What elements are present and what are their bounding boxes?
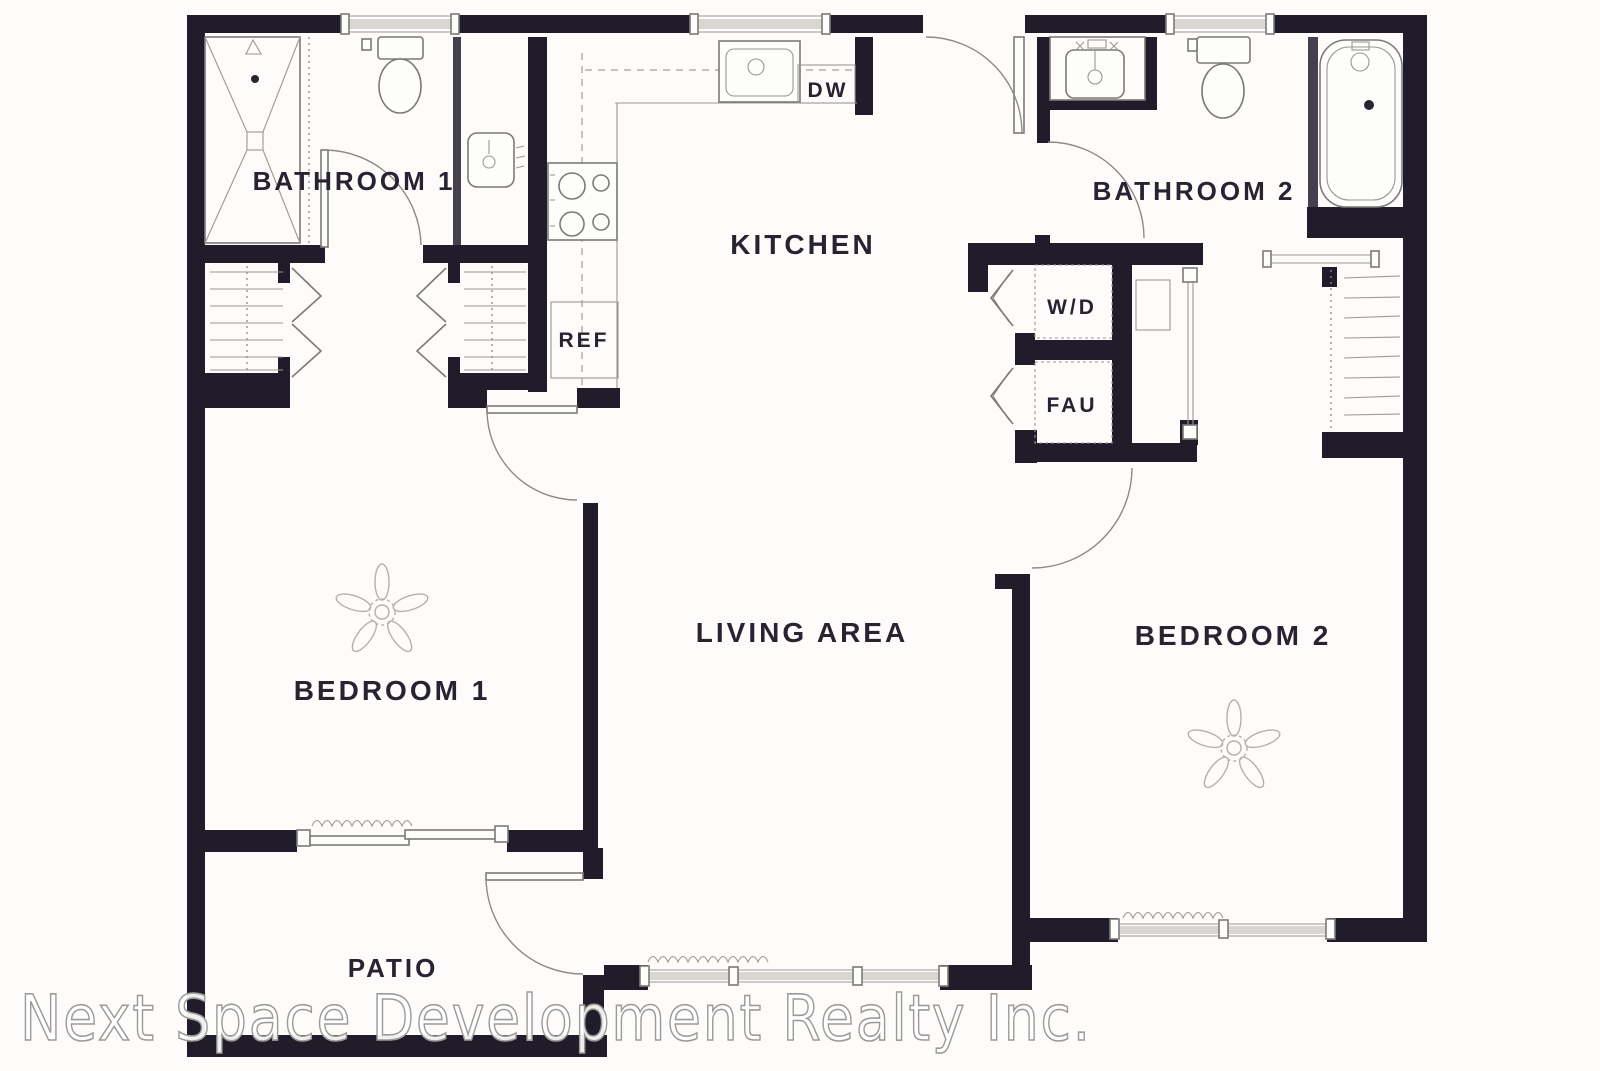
curtain-bed2 bbox=[1123, 913, 1223, 919]
bifold-door-icon bbox=[991, 270, 1013, 326]
wall-bed2-west bbox=[1012, 574, 1030, 990]
bifold-door-icon bbox=[417, 268, 446, 377]
kitchen-sink bbox=[719, 41, 800, 102]
label-fau: FAU bbox=[1047, 394, 1098, 417]
label-patio: PATIO bbox=[348, 953, 439, 983]
wall-bed2-bottom-b bbox=[1327, 918, 1427, 942]
wall-wd-right bbox=[1112, 248, 1132, 462]
wall-bed1-north-b bbox=[448, 388, 487, 408]
shower-stall bbox=[205, 37, 309, 243]
window-bed2 bbox=[1110, 913, 1335, 940]
closet-bed2-bottom bbox=[1322, 432, 1407, 458]
shower-head-icon bbox=[246, 40, 261, 54]
wall-top-a bbox=[187, 15, 348, 33]
wall-kitchen-west bbox=[528, 37, 547, 392]
label-kitchen: KITCHEN bbox=[730, 229, 875, 260]
floor-plan-svg: BATHROOM 1KITCHENBATHROOM 2LIVING AREABE… bbox=[0, 0, 1600, 1071]
wall-bed1-south-a bbox=[187, 830, 297, 852]
closet-bed2 bbox=[1263, 251, 1400, 428]
wall-top-d bbox=[1025, 15, 1173, 33]
wall-kitchen-stub bbox=[855, 37, 873, 115]
ceiling-fan-bed1 bbox=[334, 564, 430, 655]
wall-bed1-east bbox=[583, 503, 598, 830]
label-bathroom-2: BATHROOM 2 bbox=[1093, 176, 1296, 206]
label-bedroom-2: BEDROOM 2 bbox=[1135, 620, 1332, 651]
wall-outer-right bbox=[1403, 15, 1427, 942]
door-bath1 bbox=[321, 150, 421, 247]
closet-bed1-right bbox=[417, 266, 526, 377]
shower-drain-icon bbox=[251, 75, 259, 83]
wall-bath2-west-a bbox=[1037, 37, 1050, 143]
curtain-bed1 bbox=[312, 821, 412, 827]
vanity-sink-bath1 bbox=[468, 133, 525, 187]
wall-bath1-south-b bbox=[423, 245, 530, 263]
utility-closet bbox=[1136, 268, 1197, 439]
door-bed2 bbox=[1032, 468, 1132, 568]
windows bbox=[297, 13, 1335, 986]
wall-bed1-north-c bbox=[577, 388, 620, 408]
wall-sink-niche-right bbox=[1145, 37, 1157, 110]
window-bath2 bbox=[1166, 13, 1274, 35]
door-entry bbox=[926, 37, 1024, 133]
bifold-door-icon bbox=[292, 268, 321, 377]
wall-patio-east-a bbox=[583, 848, 603, 879]
watermark-text: Next Space Development Realty Inc. bbox=[20, 982, 1092, 1055]
label-bathroom-1: BATHROOM 1 bbox=[253, 166, 456, 196]
closet-bed2-stub bbox=[1322, 267, 1337, 287]
room-labels: BATHROOM 1KITCHENBATHROOM 2LIVING AREABE… bbox=[253, 79, 1332, 983]
toilet-bath1 bbox=[362, 37, 423, 113]
label-washer-dryer: W/D bbox=[1047, 296, 1097, 319]
closet-right-stub-top bbox=[448, 263, 460, 283]
window-bath1 bbox=[341, 13, 459, 35]
door-bed1 bbox=[487, 406, 577, 500]
closet-right-bottom bbox=[448, 373, 530, 390]
label-dishwasher: DW bbox=[808, 79, 849, 102]
vanity-bath2 bbox=[1050, 37, 1145, 100]
wall-bed2-bottom-a bbox=[1030, 918, 1118, 942]
ceiling-fan-bed2 bbox=[1186, 700, 1282, 791]
wall-sink-niche-bottom bbox=[1048, 100, 1157, 110]
wall-wd-bottom bbox=[1015, 443, 1197, 462]
wall-bath1-south-a bbox=[187, 245, 325, 263]
label-living-area: LIVING AREA bbox=[696, 617, 908, 648]
label-bedroom-1: BEDROOM 1 bbox=[294, 675, 491, 706]
bathtub bbox=[1320, 40, 1402, 207]
wall-wd-cap bbox=[968, 265, 988, 292]
wall-outer-left bbox=[187, 15, 205, 1057]
window-kitchen bbox=[690, 13, 830, 35]
wall-tub-left bbox=[1308, 37, 1318, 207]
floor-plan-page: BATHROOM 1KITCHENBATHROOM 2LIVING AREABE… bbox=[0, 0, 1600, 1071]
wall-vanity-partition bbox=[453, 37, 461, 245]
wall-wd-mid-cap bbox=[1015, 333, 1035, 365]
curtain-living bbox=[648, 957, 768, 963]
wall-under-tub bbox=[1307, 207, 1427, 238]
sliding-door-bed1 bbox=[297, 821, 508, 847]
label-refrigerator: REF bbox=[559, 329, 610, 352]
wall-top-b bbox=[452, 15, 697, 33]
toilet-bath2 bbox=[1188, 37, 1250, 118]
tub-drain-icon bbox=[1364, 100, 1374, 110]
wall-bed1-north-a bbox=[205, 388, 290, 408]
closet-bed1-left bbox=[210, 266, 321, 377]
stove-icon bbox=[548, 163, 617, 240]
closet-left-stub-top bbox=[278, 263, 290, 283]
bifold-door-icon bbox=[991, 368, 1013, 424]
wall-bath2-south bbox=[968, 243, 1203, 265]
wall-top-c bbox=[823, 15, 923, 33]
closet-left-bottom bbox=[205, 373, 290, 390]
door-patio bbox=[486, 873, 583, 974]
